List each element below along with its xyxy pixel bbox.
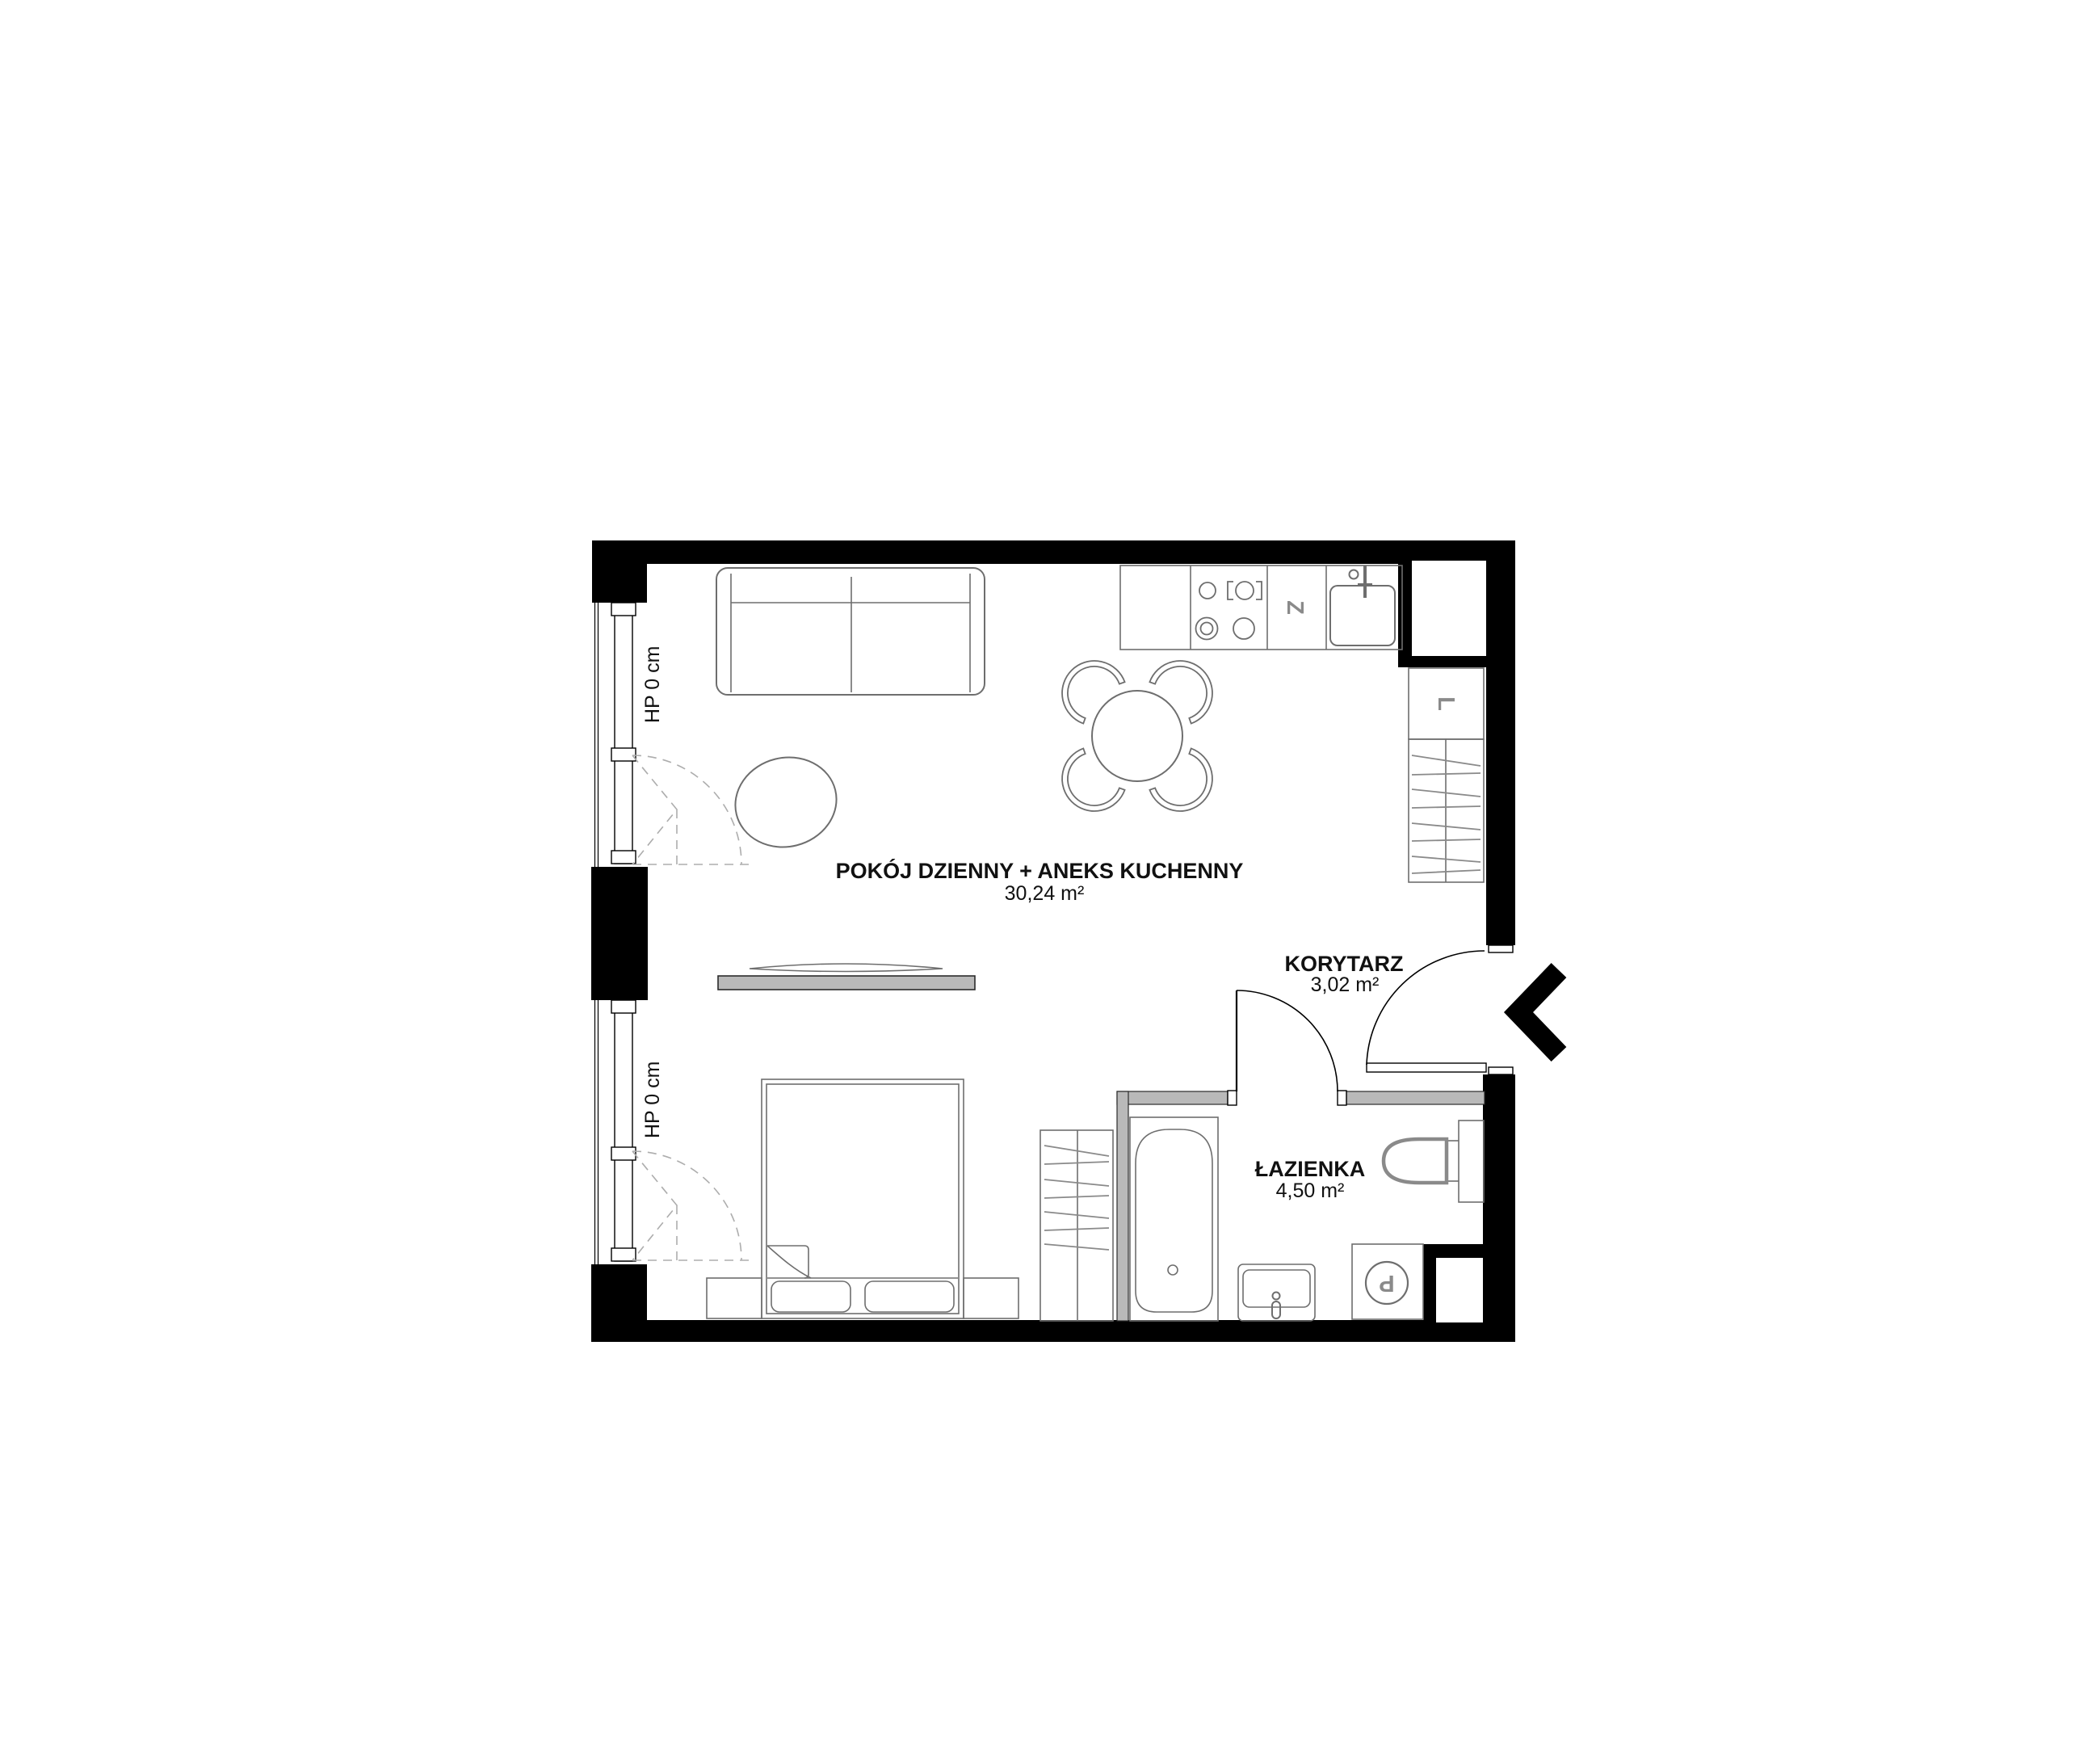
bathroom-door [1237, 990, 1338, 1091]
wall-right-lower [1483, 1074, 1515, 1342]
entry-frame-bottom [1489, 1067, 1513, 1074]
bathtub-drain [1168, 1265, 1178, 1275]
bed [762, 1079, 964, 1318]
basin-faucet [1273, 1293, 1280, 1300]
room-labels: POKÓJ DZIENNY + ANEKS KUCHENNY 30,24 m² … [641, 646, 1403, 1202]
window-end-block [611, 1248, 636, 1261]
dining-set [1048, 647, 1225, 824]
wall-bottom [592, 1320, 1515, 1342]
hall-wardrobe [1409, 739, 1484, 882]
window-sash [615, 1000, 632, 1261]
wardrobe-hatch [1044, 1146, 1109, 1250]
dining-table [1092, 691, 1182, 781]
fridge-label: L [1433, 696, 1459, 711]
window-end-block [611, 851, 636, 864]
tv [750, 964, 943, 972]
pillow [771, 1281, 850, 1312]
bath-door-frame-left [1228, 1091, 1237, 1105]
bathtub-inner [1136, 1129, 1212, 1312]
fridge: L [1409, 668, 1484, 739]
corridor-name: KORYTARZ [1285, 952, 1404, 976]
floor-plan-page: Z L [0, 0, 2100, 1745]
bathroom-area: 4,50 m² [1276, 1179, 1345, 1202]
window-sash [615, 603, 632, 864]
pillow [865, 1281, 954, 1312]
blanket-fold [767, 1246, 811, 1278]
dishwasher-label: Z [1282, 600, 1308, 615]
floor-plan-svg: Z L [0, 0, 2100, 1745]
wall-pier-left-middle [591, 867, 648, 1000]
toilet-cistern [1459, 1121, 1484, 1202]
corridor-area: 3,02 m² [1311, 973, 1380, 996]
burner-brackets [1228, 582, 1262, 599]
bath-corner-niche [1436, 1258, 1483, 1322]
washer-label: P [1379, 1270, 1394, 1296]
basin-faucet-body [1272, 1301, 1280, 1318]
nightstand-left [707, 1278, 762, 1318]
burner [1199, 582, 1216, 599]
window-swing-triangle [632, 1151, 751, 1260]
stove [1196, 582, 1262, 640]
bathroom-wall-top-right [1346, 1091, 1485, 1104]
pouf [726, 746, 846, 857]
bed-mattress [766, 1084, 959, 1314]
washbasin [1238, 1264, 1315, 1321]
entry-frame-top [1489, 945, 1513, 952]
wall-corner-top-left [592, 540, 647, 603]
bed-frame [762, 1079, 964, 1318]
toilet-bowl [1384, 1139, 1447, 1183]
sofa-body [716, 568, 985, 695]
window-swing-arc [632, 1151, 741, 1260]
toilet [1384, 1121, 1484, 1202]
bath-door-frame-right [1338, 1091, 1346, 1105]
burner [1236, 582, 1254, 599]
faucet-base [1350, 570, 1359, 579]
living-room-furniture [716, 568, 1226, 990]
sofa [716, 568, 985, 695]
window-mid-block [611, 1147, 636, 1160]
window-swing-triangle [632, 755, 751, 864]
nightstand-right [964, 1278, 1018, 1318]
burner [1233, 618, 1254, 639]
window-lower [611, 1000, 751, 1261]
living-room-name: POKÓJ DZIENNY + ANEKS KUCHENNY [836, 858, 1244, 883]
tv-console [718, 976, 975, 990]
window-lower-label: HP 0 cm [641, 1062, 664, 1138]
living-room-area: 30,24 m² [1005, 882, 1085, 905]
wall-stub-bath-left [1423, 1244, 1436, 1322]
wall-top [592, 540, 1515, 564]
burner [1201, 623, 1213, 635]
window-mid-block [611, 748, 636, 761]
kitchen-sink [1330, 566, 1395, 645]
window-upper-label: HP 0 cm [641, 646, 664, 723]
burner [1196, 618, 1218, 640]
bathtub [1130, 1117, 1218, 1321]
wardrobe-box [1040, 1130, 1113, 1321]
bathroom-name: ŁAZIENKA [1255, 1157, 1366, 1181]
window-end-block [611, 1000, 636, 1013]
bathroom-wall-left [1117, 1091, 1128, 1321]
window-swing-arc [632, 755, 741, 864]
entrance-arrow-icon [1518, 970, 1559, 1054]
bathroom-wall-top-left [1117, 1091, 1228, 1104]
entry-door-leaf [1367, 1063, 1486, 1072]
bedroom-wardrobe [1040, 1130, 1113, 1321]
washing-machine: P [1352, 1244, 1423, 1319]
bathroom-door-swing-arc [1237, 990, 1338, 1091]
sleeping-area [707, 1079, 1113, 1321]
sink-basin [1330, 586, 1395, 645]
bathtub-outer [1130, 1117, 1218, 1321]
shaft-niche [1412, 561, 1486, 656]
window-end-block [611, 603, 636, 616]
